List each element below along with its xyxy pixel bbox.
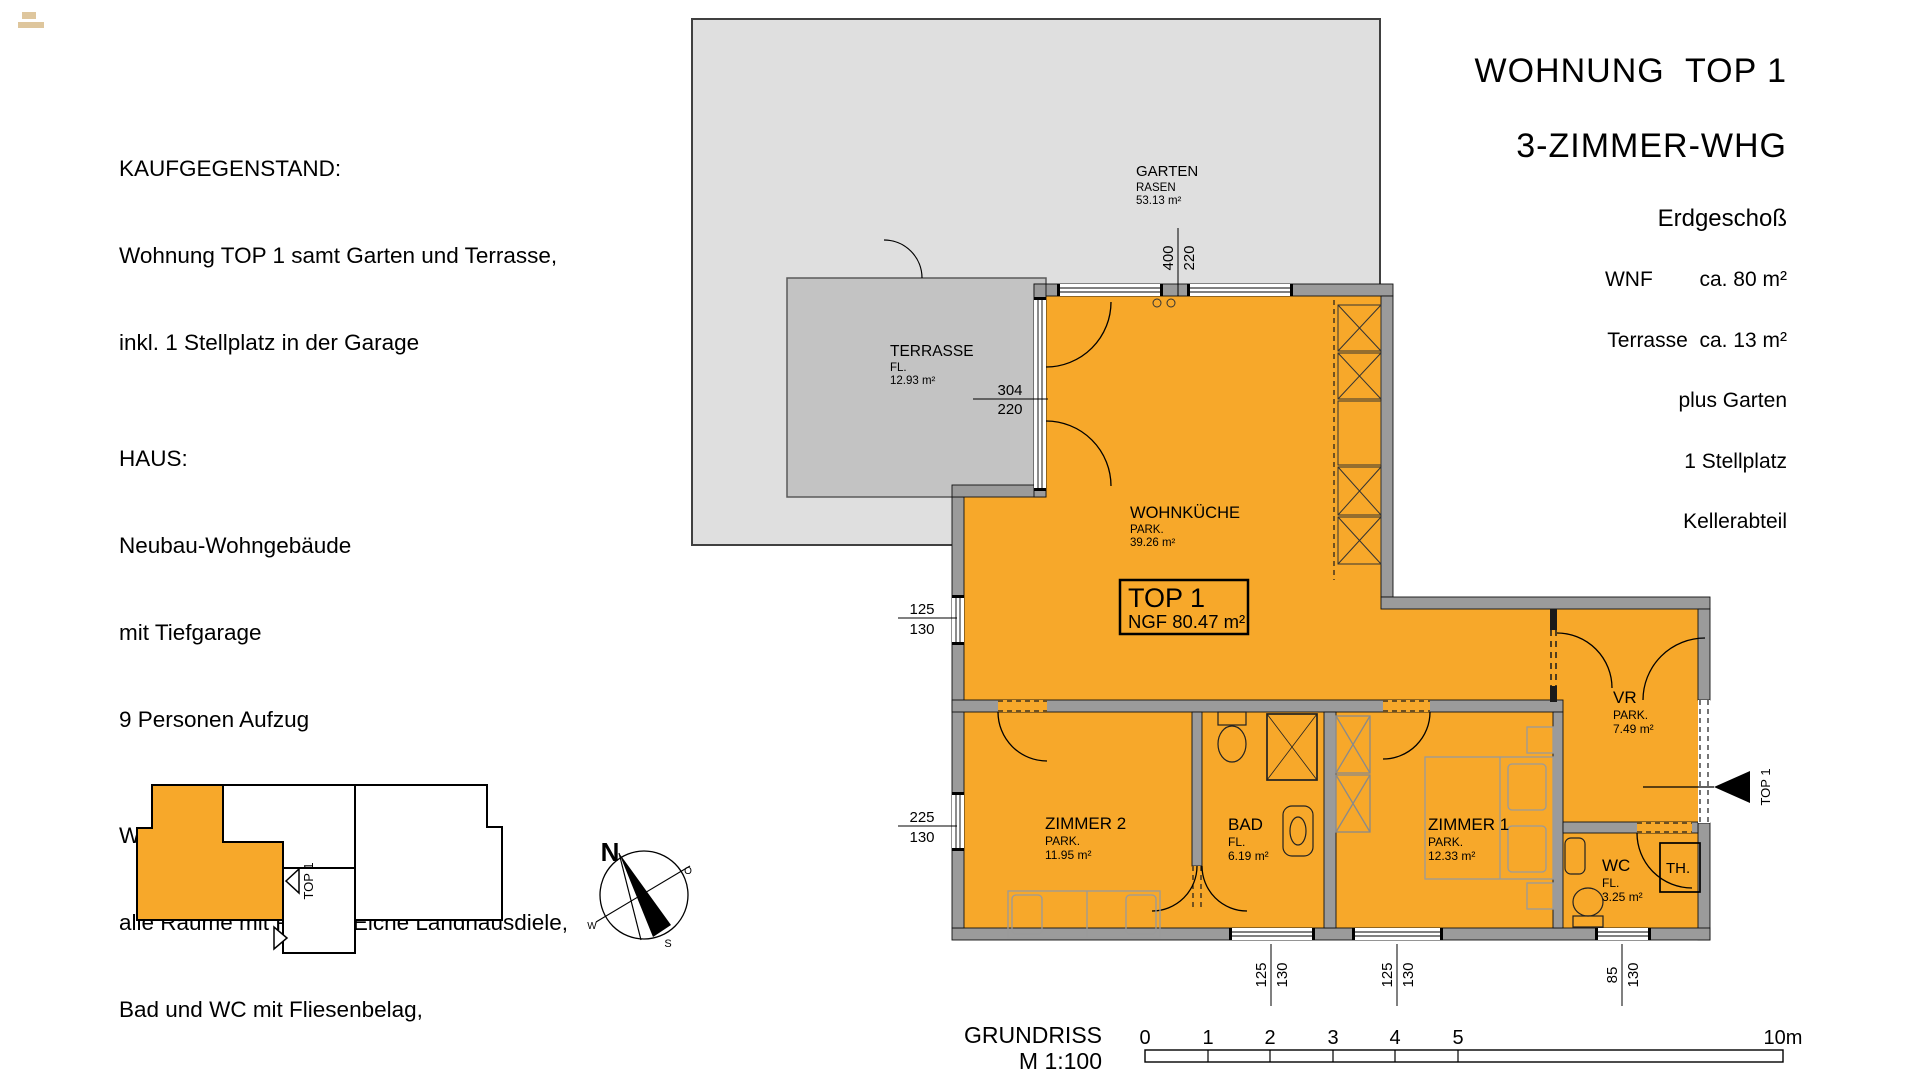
room-finish: PARK. [1130, 524, 1164, 536]
room-name: TERRASSE [890, 343, 974, 360]
window [1352, 928, 1443, 940]
wall-interior [1324, 712, 1336, 928]
compass-needle-icon [619, 853, 671, 937]
room-finish: FL. [1228, 835, 1245, 849]
dimension-bottom-2: 125 130 [1379, 944, 1417, 1006]
overview-building-right [355, 785, 502, 920]
room-finish: PARK. [1045, 834, 1080, 848]
room-area: 3.25 m² [1602, 890, 1643, 904]
floorplan-drawing: GARTEN RASEN 53.13 m² TERRASSE FL. 12.93… [0, 0, 1920, 1080]
room-name: BAD [1228, 815, 1263, 834]
scale-tick: 0 [1139, 1027, 1150, 1049]
window [952, 595, 964, 645]
wall-interior [1553, 712, 1563, 928]
scale-tick: 3 [1327, 1027, 1338, 1049]
window [1057, 284, 1163, 296]
compass: N O W S [587, 837, 692, 950]
room-finish: PARK. [1428, 835, 1463, 849]
overview-unit-label: TOP 1 [301, 862, 316, 899]
svg-text:130: 130 [909, 621, 934, 638]
room-finish: FL. [1602, 876, 1619, 890]
svg-text:400: 400 [1160, 245, 1177, 270]
room-finish: RASEN [1136, 182, 1176, 194]
unit-ngf: NGF 80.47 m² [1128, 611, 1245, 632]
svg-text:225: 225 [909, 809, 934, 826]
scale-tick: 10m [1764, 1027, 1803, 1049]
room-name: GARTEN [1136, 163, 1198, 180]
svg-text:125: 125 [909, 601, 934, 618]
wall-interior [1192, 712, 1202, 866]
room-name: WC [1602, 856, 1630, 875]
compass-south: S [664, 938, 671, 950]
unit-title: TOP 1 [1128, 583, 1205, 613]
dimension-left-lower: 225 130 [898, 809, 957, 846]
room-finish: FL. [890, 362, 907, 374]
svg-text:125: 125 [1253, 962, 1270, 987]
compass-west: W [587, 921, 597, 932]
room-area: 7.49 m² [1613, 722, 1654, 736]
room-name: ZIMMER 1 [1428, 815, 1509, 834]
entrance-opening [1698, 700, 1710, 823]
wall [952, 497, 964, 928]
svg-text:130: 130 [1400, 962, 1417, 987]
wall [952, 485, 1046, 497]
svg-text:304: 304 [997, 382, 1022, 399]
floorplan-page: KAUFGEGENSTAND: Wohnung TOP 1 samt Garte… [0, 0, 1920, 1080]
room-area: 11.95 m² [1045, 848, 1091, 862]
dimension-bottom-1: 125 130 [1253, 944, 1291, 1006]
compass-east: O [684, 866, 692, 877]
scale-tick: 4 [1389, 1027, 1400, 1049]
terrace-door-opening [1034, 297, 1046, 491]
door-opening [1383, 700, 1430, 712]
entrance-label: TOP 1 [1758, 768, 1773, 805]
footer: GRUNDRISS M 1:100 0 1 2 3 4 5 10m [964, 1022, 1802, 1074]
room-area: 53.13 m² [1136, 195, 1182, 207]
room-name: WOHNKÜCHE [1130, 504, 1240, 522]
scale-tick: 2 [1264, 1027, 1275, 1049]
scale-tick: 5 [1452, 1027, 1463, 1049]
drawing-type-label: GRUNDRISS [964, 1022, 1102, 1048]
wall [1698, 609, 1710, 700]
room-area: 12.93 m² [890, 375, 936, 387]
door-opening [1637, 822, 1692, 833]
svg-text:220: 220 [1181, 245, 1198, 270]
svg-text:130: 130 [1625, 962, 1642, 987]
room-name: ZIMMER 2 [1045, 814, 1126, 833]
wall [1381, 296, 1393, 597]
svg-text:130: 130 [909, 829, 934, 846]
svg-text:220: 220 [997, 401, 1022, 418]
dimension-left-upper: 125 130 [898, 601, 957, 638]
window [1187, 284, 1293, 296]
drawing-scale-label: M 1:100 [1019, 1048, 1102, 1074]
window [1595, 928, 1651, 940]
technik-label: TH. [1666, 860, 1690, 877]
door-opening [998, 700, 1047, 712]
window [1229, 928, 1315, 940]
svg-text:130: 130 [1274, 962, 1291, 987]
room-finish: PARK. [1613, 708, 1648, 722]
room-name: VR [1613, 688, 1637, 707]
dimension-bottom-3: 85 130 [1604, 944, 1642, 1006]
scale-tick: 1 [1202, 1027, 1213, 1049]
room-area: 39.26 m² [1130, 537, 1176, 549]
scale-bar: 0 1 2 3 4 5 10m [1139, 1027, 1802, 1062]
overview-plan: TOP 1 [137, 785, 502, 953]
entrance-arrow-icon [1714, 771, 1750, 803]
svg-text:85: 85 [1604, 967, 1621, 984]
wall [1381, 597, 1710, 609]
svg-text:125: 125 [1379, 962, 1396, 987]
window [952, 792, 964, 851]
room-area: 6.19 m² [1228, 849, 1269, 863]
room-area: 12.33 m² [1428, 849, 1475, 863]
compass-north: N [601, 837, 620, 867]
